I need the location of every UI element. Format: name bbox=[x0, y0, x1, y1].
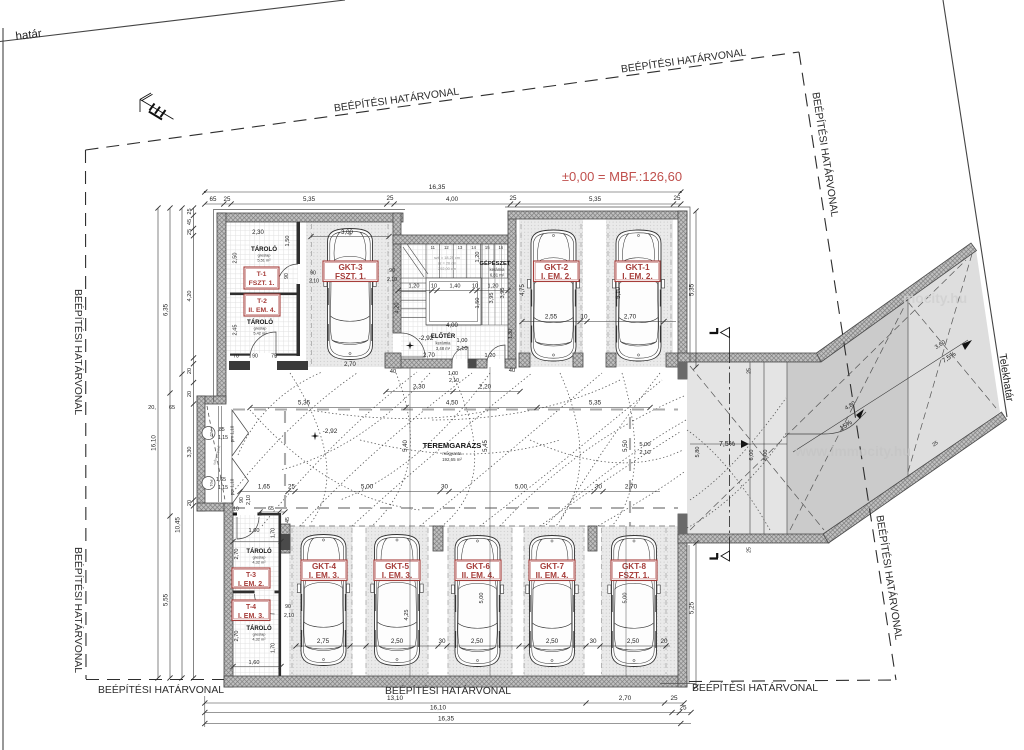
svg-text:2,70: 2,70 bbox=[625, 484, 638, 491]
svg-text:30: 30 bbox=[595, 484, 603, 491]
svg-text:FSZT. 1.: FSZT. 1. bbox=[249, 280, 275, 287]
svg-text:4,00: 4,00 bbox=[446, 196, 459, 203]
svg-text:I. EM. 2.: I. EM. 2. bbox=[541, 272, 571, 281]
svg-text:1,00: 1,00 bbox=[457, 338, 468, 344]
svg-text:10: 10 bbox=[233, 507, 239, 513]
svg-text:4,32 m²: 4,32 m² bbox=[252, 637, 266, 642]
svg-text:20: 20 bbox=[660, 638, 668, 645]
svg-text:3,48 m²: 3,48 m² bbox=[436, 346, 451, 351]
svg-text:GÉPÉSZET: GÉPÉSZET bbox=[480, 259, 511, 267]
svg-text:5,35: 5,35 bbox=[298, 400, 311, 407]
svg-text:30: 30 bbox=[589, 638, 597, 645]
svg-text:5,00: 5,00 bbox=[623, 593, 629, 604]
svg-text:5,00: 5,00 bbox=[639, 442, 650, 448]
svg-text:5,35: 5,35 bbox=[589, 196, 602, 203]
svg-text:2,10: 2,10 bbox=[449, 378, 459, 384]
svg-text:2,10: 2,10 bbox=[639, 450, 650, 456]
svg-text:15: 15 bbox=[485, 245, 490, 250]
svg-text:5,00: 5,00 bbox=[515, 484, 528, 491]
svg-text:5,55: 5,55 bbox=[163, 593, 170, 606]
svg-text:2,50: 2,50 bbox=[627, 638, 640, 645]
svg-text:10,45: 10,45 bbox=[175, 517, 182, 533]
svg-text:30: 30 bbox=[441, 484, 449, 491]
svg-text:2,70: 2,70 bbox=[423, 353, 435, 359]
svg-text:4,20: 4,20 bbox=[395, 303, 401, 314]
svg-text:BEÉPÍTÉSI HATÁRVONAL: BEÉPÍTÉSI HATÁRVONAL bbox=[72, 547, 85, 673]
svg-text:www.immocity.hu: www.immocity.hu bbox=[794, 444, 911, 459]
svg-text:1,20: 1,20 bbox=[475, 252, 481, 263]
svg-text:25: 25 bbox=[387, 195, 394, 202]
svg-text:20: 20 bbox=[187, 500, 193, 506]
svg-text:45: 45 bbox=[285, 517, 291, 523]
svg-text:5,51 m²: 5,51 m² bbox=[257, 258, 271, 263]
svg-text:1,65: 1,65 bbox=[258, 484, 271, 491]
svg-text:1,70: 1,70 bbox=[271, 643, 277, 653]
svg-text:2,10: 2,10 bbox=[457, 346, 468, 352]
svg-text:13: 13 bbox=[458, 245, 463, 250]
svg-text:90: 90 bbox=[284, 273, 290, 279]
svg-text:FSZT. 1.: FSZT. 1. bbox=[335, 272, 366, 281]
svg-text:3,95: 3,95 bbox=[500, 288, 506, 299]
svg-text:2,20: 2,20 bbox=[479, 384, 492, 391]
svg-text:1,65: 1,65 bbox=[216, 477, 226, 483]
svg-text:70: 70 bbox=[233, 354, 239, 360]
svg-text:2,70: 2,70 bbox=[624, 314, 637, 321]
svg-text:5,40: 5,40 bbox=[403, 440, 409, 452]
svg-text:I. EM. 3.: I. EM. 3. bbox=[382, 571, 412, 580]
svg-text:25: 25 bbox=[187, 229, 193, 235]
svg-text:65: 65 bbox=[268, 506, 274, 512]
svg-text:ELŐTÉR: ELŐTÉR bbox=[431, 332, 456, 340]
svg-text:2,50: 2,50 bbox=[391, 638, 404, 645]
svg-text:25: 25 bbox=[224, 196, 231, 203]
svg-text:25: 25 bbox=[510, 195, 517, 202]
svg-text:GKT-1: GKT-1 bbox=[625, 263, 650, 272]
svg-text:90: 90 bbox=[239, 497, 245, 503]
svg-text:4,25: 4,25 bbox=[404, 610, 410, 621]
svg-text:65: 65 bbox=[210, 196, 217, 203]
svg-text:1,15: 1,15 bbox=[218, 485, 228, 491]
svg-text:16,10: 16,10 bbox=[151, 435, 158, 451]
svg-text:BEÉPÍTÉSI HATÁRVONAL: BEÉPÍTÉSI HATÁRVONAL bbox=[98, 683, 224, 696]
svg-text:T-3: T-3 bbox=[246, 572, 256, 579]
svg-text:10: 10 bbox=[431, 284, 437, 290]
svg-text:5,10: 5,10 bbox=[616, 287, 622, 299]
svg-text:292,00 cm: 292,00 cm bbox=[438, 267, 456, 271]
svg-text:GKT-2: GKT-2 bbox=[544, 263, 569, 272]
svg-text:2,50: 2,50 bbox=[233, 253, 239, 264]
svg-text:TEREMGARÁZS: TEREMGARÁZS bbox=[423, 441, 482, 450]
svg-text:T-4: T-4 bbox=[246, 604, 256, 611]
svg-text:3,95: 3,95 bbox=[489, 293, 495, 304]
svg-text:GKT-5: GKT-5 bbox=[385, 562, 410, 571]
svg-text:25: 25 bbox=[747, 547, 753, 553]
svg-text:2,50: 2,50 bbox=[471, 638, 484, 645]
svg-text:3,30: 3,30 bbox=[187, 447, 193, 458]
svg-text:T-2: T-2 bbox=[257, 298, 267, 305]
svg-text:BEÉPÍTÉSI HATÁRVONAL: BEÉPÍTÉSI HATÁRVONAL bbox=[692, 681, 818, 694]
svg-text:P01: P01 bbox=[209, 479, 214, 487]
svg-text:2,30: 2,30 bbox=[252, 230, 264, 236]
svg-text:BEÉPÍTÉSI HATÁRVONAL: BEÉPÍTÉSI HATÁRVONAL bbox=[385, 684, 511, 697]
svg-text:16: 16 bbox=[498, 245, 503, 250]
svg-text:±0,00 = MBF.:126,60: ±0,00 = MBF.:126,60 bbox=[562, 169, 682, 184]
svg-text:2,10: 2,10 bbox=[284, 613, 294, 619]
svg-text:3,00: 3,00 bbox=[341, 230, 353, 236]
svg-text:4,20: 4,20 bbox=[187, 291, 193, 302]
svg-text:P02: P02 bbox=[209, 429, 214, 437]
svg-text:,85: ,85 bbox=[217, 427, 224, 433]
svg-text:65: 65 bbox=[169, 405, 175, 411]
svg-text:7,5%: 7,5% bbox=[719, 441, 735, 448]
svg-text:2,30: 2,30 bbox=[413, 384, 426, 391]
svg-text:5,00: 5,00 bbox=[361, 484, 374, 491]
svg-text:GKT-3: GKT-3 bbox=[338, 263, 363, 272]
svg-text:20: 20 bbox=[187, 368, 193, 374]
svg-text:2,70: 2,70 bbox=[344, 362, 356, 368]
svg-text:25: 25 bbox=[288, 484, 296, 491]
svg-text:5,42 m²: 5,42 m² bbox=[253, 331, 267, 336]
svg-text:75: 75 bbox=[271, 354, 277, 360]
svg-text:5,35: 5,35 bbox=[303, 196, 316, 203]
svg-text:10: 10 bbox=[580, 314, 588, 321]
svg-text:5,25: 5,25 bbox=[689, 601, 696, 614]
svg-text:4,32 m²: 4,32 m² bbox=[252, 560, 266, 565]
svg-text:5,35: 5,35 bbox=[589, 400, 602, 407]
svg-text:FSZT. 1.: FSZT. 1. bbox=[619, 571, 650, 580]
svg-text:II. EM. 4.: II. EM. 4. bbox=[462, 571, 495, 580]
svg-text:-2,92: -2,92 bbox=[323, 428, 338, 435]
svg-text:20,: 20, bbox=[148, 405, 156, 411]
svg-text:90: 90 bbox=[389, 268, 395, 274]
svg-text:szb = 18,25 cm: szb = 18,25 cm bbox=[434, 256, 460, 260]
svg-text:16,10: 16,10 bbox=[430, 705, 446, 712]
svg-text:2,70: 2,70 bbox=[234, 549, 240, 560]
svg-text:BEÉPÍTÉSI HATÁRVONAL: BEÉPÍTÉSI HATÁRVONAL bbox=[72, 289, 85, 415]
svg-text:II. EM. 4.: II. EM. 4. bbox=[248, 307, 275, 314]
svg-text:mocity.hu: mocity.hu bbox=[903, 291, 967, 306]
svg-text:2,70: 2,70 bbox=[234, 631, 240, 642]
svg-text:1,20: 1,20 bbox=[409, 284, 420, 290]
svg-text:I. EM. 2.: I. EM. 2. bbox=[238, 581, 264, 588]
svg-text:16,35: 16,35 bbox=[429, 184, 446, 191]
svg-text:2,75: 2,75 bbox=[317, 638, 330, 645]
svg-text:5,45: 5,45 bbox=[483, 440, 489, 452]
svg-text:11: 11 bbox=[431, 245, 436, 250]
svg-text:1,50: 1,50 bbox=[475, 298, 481, 309]
svg-text:6,00: 6,00 bbox=[749, 450, 755, 461]
svg-text:pm 1,10: pm 1,10 bbox=[230, 478, 235, 495]
svg-text:25: 25 bbox=[747, 368, 753, 374]
svg-text:1,60: 1,60 bbox=[249, 660, 260, 666]
svg-text:4,50: 4,50 bbox=[446, 400, 459, 407]
svg-text:6,00: 6,00 bbox=[763, 450, 769, 461]
svg-text:192,65 m²: 192,65 m² bbox=[442, 457, 462, 462]
svg-text:pm 1,10: pm 1,10 bbox=[230, 425, 235, 442]
svg-text:5,00: 5,00 bbox=[479, 593, 485, 604]
svg-text:5,80: 5,80 bbox=[695, 447, 701, 458]
svg-text:1,20: 1,20 bbox=[485, 353, 496, 359]
svg-text:2,70: 2,70 bbox=[619, 695, 632, 702]
svg-text:40: 40 bbox=[509, 368, 515, 374]
svg-text:2,50: 2,50 bbox=[546, 638, 559, 645]
svg-text:25: 25 bbox=[679, 705, 687, 712]
svg-text:-2,92: -2,92 bbox=[419, 335, 434, 342]
svg-text:GKT-6: GKT-6 bbox=[466, 562, 491, 571]
svg-text:2,10: 2,10 bbox=[387, 277, 397, 283]
svg-text:2,10: 2,10 bbox=[246, 495, 252, 505]
svg-text:GKT-7: GKT-7 bbox=[540, 562, 565, 571]
svg-text:2,10: 2,10 bbox=[309, 279, 319, 285]
svg-text:25: 25 bbox=[674, 195, 681, 202]
svg-text:90: 90 bbox=[310, 271, 316, 277]
svg-text:1,70: 1,70 bbox=[271, 528, 277, 538]
svg-text:90: 90 bbox=[252, 354, 258, 360]
svg-text:5,35: 5,35 bbox=[689, 283, 696, 296]
svg-text:90: 90 bbox=[285, 604, 291, 610]
svg-text:30: 30 bbox=[438, 638, 446, 645]
svg-text:I. EM. 3.: I. EM. 3. bbox=[309, 571, 339, 580]
svg-text:1,20: 1,20 bbox=[488, 284, 499, 290]
svg-text:16,35: 16,35 bbox=[438, 716, 454, 723]
svg-text:1,60: 1,60 bbox=[249, 528, 260, 534]
svg-text:12: 12 bbox=[444, 245, 449, 250]
svg-text:2,55: 2,55 bbox=[545, 314, 558, 321]
svg-text:6,81 m²: 6,81 m² bbox=[490, 273, 505, 278]
svg-text:GKT-4: GKT-4 bbox=[312, 562, 337, 571]
svg-text:1,50: 1,50 bbox=[285, 236, 291, 247]
svg-text:sz = 26 cm: sz = 26 cm bbox=[438, 262, 456, 266]
svg-text:kerámia: kerámia bbox=[490, 267, 506, 272]
svg-text:II. EM. 4.: II. EM. 4. bbox=[536, 571, 569, 580]
svg-text:1,40: 1,40 bbox=[450, 284, 461, 290]
svg-text:20: 20 bbox=[187, 391, 193, 397]
svg-text:kerámia: kerámia bbox=[436, 341, 452, 346]
svg-text:10: 10 bbox=[472, 284, 478, 290]
svg-text:4,75: 4,75 bbox=[520, 284, 526, 296]
svg-text:1,00: 1,00 bbox=[448, 371, 458, 377]
svg-text:2,45: 2,45 bbox=[233, 325, 239, 336]
svg-text:40: 40 bbox=[390, 369, 396, 375]
svg-text:T-1: T-1 bbox=[257, 271, 267, 278]
svg-text:1,15: 1,15 bbox=[218, 435, 228, 441]
svg-text:6,35: 6,35 bbox=[163, 303, 170, 316]
svg-text:1,30: 1,30 bbox=[508, 329, 514, 339]
svg-text:GKT-8: GKT-8 bbox=[622, 562, 647, 571]
svg-text:I. EM. 2.: I. EM. 2. bbox=[622, 272, 652, 281]
svg-text:45: 45 bbox=[187, 219, 193, 225]
svg-text:25: 25 bbox=[187, 208, 193, 214]
svg-text:25: 25 bbox=[670, 695, 678, 702]
svg-text:5,50: 5,50 bbox=[623, 440, 629, 452]
svg-text:4,00: 4,00 bbox=[446, 323, 458, 329]
svg-text:I. EM. 3.: I. EM. 3. bbox=[238, 613, 264, 620]
svg-text:14: 14 bbox=[471, 245, 476, 250]
svg-text:műgyanta: műgyanta bbox=[442, 451, 462, 456]
